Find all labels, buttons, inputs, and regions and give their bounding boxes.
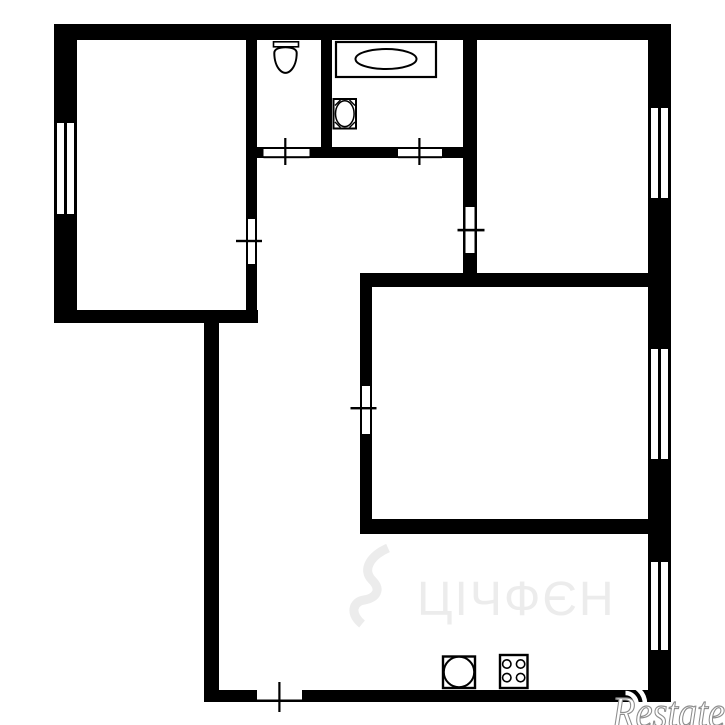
svg-text:ЦІЧФЄН: ЦІЧФЄН (417, 573, 616, 626)
svg-text:Restate: Restate (611, 688, 725, 725)
